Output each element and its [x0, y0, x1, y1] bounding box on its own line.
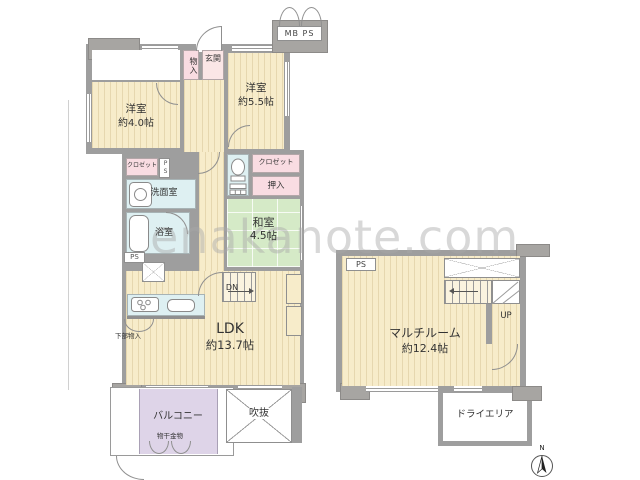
- ldk-label: LDK 約13.7帖: [165, 320, 295, 353]
- pipe-shaft-2: PS: [124, 252, 145, 263]
- compass-north-label: N: [536, 444, 548, 453]
- entrance-door-arc: [196, 26, 222, 51]
- stairs-arrow-head: [449, 288, 454, 294]
- balcony-exit-door-arc: [116, 456, 144, 480]
- bathroom-label: 浴室: [144, 228, 184, 240]
- window: [454, 385, 482, 392]
- floor-plan: enakanote.com 物入 PS PS: [0, 0, 640, 480]
- pillar: [512, 386, 542, 401]
- japanese-room-label: 和室 4.5帖: [227, 216, 300, 244]
- step-box: [286, 274, 302, 304]
- dry-area-label: ドライエリア: [444, 409, 526, 421]
- entrance-storage: 物入: [183, 50, 199, 80]
- stairs-arrow: [454, 291, 478, 292]
- toilet-icon: [228, 158, 248, 195]
- bedroom-55-label: 洋室 約5.5帖: [226, 82, 286, 109]
- mb-ps-door-arc: [301, 7, 322, 26]
- multi-room-label: マルチルーム 約12.4帖: [350, 326, 500, 356]
- watermark: enakanote.com: [150, 210, 519, 264]
- refrigerator-space: [142, 262, 165, 282]
- entrance-porch: [92, 50, 180, 80]
- entrance-label: 玄関: [202, 54, 224, 64]
- window: [232, 45, 272, 52]
- stove-icon: [131, 297, 159, 312]
- washroom-label: 洗面室: [136, 188, 192, 200]
- closet-east-label: クロゼット: [252, 158, 300, 167]
- mb-ps-door-arc: [279, 7, 300, 26]
- mb-ps-box: MB PS: [277, 26, 322, 41]
- balcony-label: バルコニー: [136, 410, 220, 423]
- corridor: [184, 80, 224, 152]
- under-storage-label: 下部物入: [104, 332, 152, 340]
- stairs-down-label: DN: [222, 283, 242, 293]
- stairs-up-label: UP: [492, 311, 520, 322]
- sink-icon: [167, 299, 195, 312]
- bedroom-40-label: 洋室 約4.0帖: [92, 103, 180, 130]
- stairs-winder-lines: [492, 280, 520, 304]
- open-void-label: 吹抜: [226, 407, 292, 420]
- pillar: [516, 244, 550, 257]
- site-boundary-line: [68, 100, 69, 390]
- closet-west-label: クロゼット: [125, 162, 159, 170]
- stairs-arrow-head: [249, 288, 254, 294]
- compass-icon: [529, 453, 555, 479]
- futon-closet-label: 押入: [252, 181, 300, 192]
- wall: [292, 387, 302, 443]
- pipe-shaft-1: PS: [159, 158, 170, 178]
- laundry-hardware-label: 物干金物: [148, 432, 192, 440]
- pipe-shaft-3: PS: [346, 258, 376, 271]
- window: [366, 385, 438, 392]
